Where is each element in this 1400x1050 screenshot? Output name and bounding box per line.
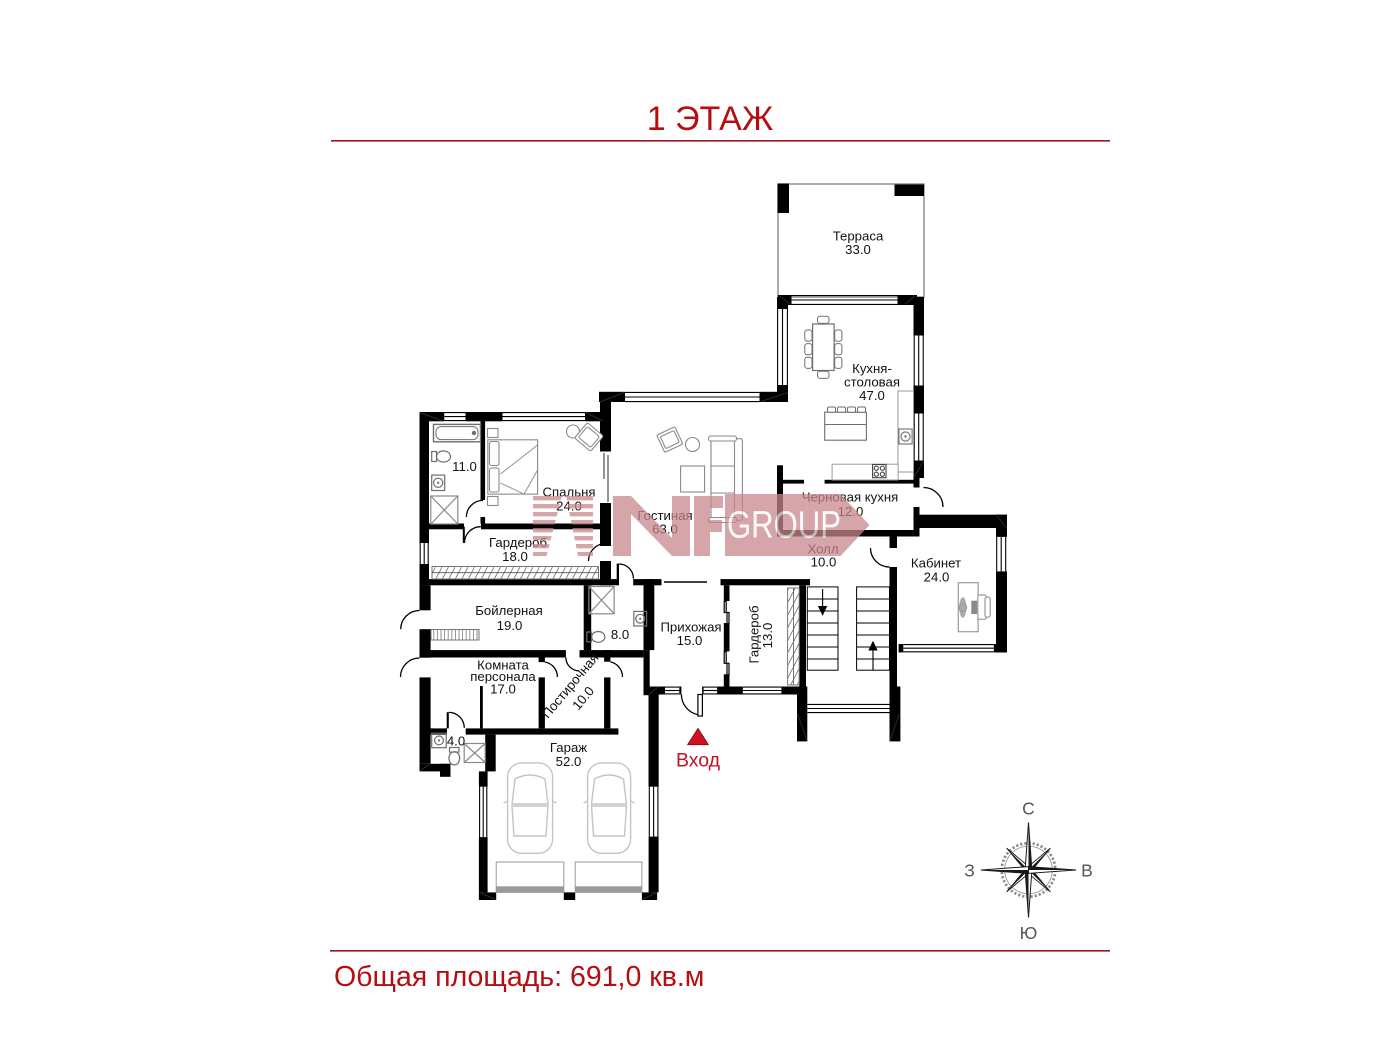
- svg-text:11.0: 11.0: [452, 459, 477, 474]
- svg-text:17.0: 17.0: [490, 682, 516, 697]
- svg-text:С: С: [1022, 799, 1035, 819]
- svg-text:Вход: Вход: [676, 750, 721, 772]
- svg-text:З: З: [964, 861, 975, 881]
- svg-text:47.0: 47.0: [859, 388, 885, 403]
- svg-text:19.0: 19.0: [497, 618, 523, 633]
- svg-text:52.0: 52.0: [556, 754, 582, 769]
- svg-text:4.0: 4.0: [447, 734, 465, 749]
- svg-text:Ю: Ю: [1020, 923, 1038, 943]
- svg-text:18.0: 18.0: [502, 549, 528, 564]
- svg-text:Бойлерная: Бойлерная: [475, 603, 542, 618]
- svg-text:15.0: 15.0: [677, 633, 703, 648]
- svg-text:Гараж: Гараж: [550, 740, 587, 755]
- svg-text:GROUP: GROUP: [727, 505, 841, 547]
- svg-text:Общая площадь: 691,0 кв.м: Общая площадь: 691,0 кв.м: [334, 961, 704, 993]
- svg-text:В: В: [1081, 861, 1093, 881]
- svg-text:1 ЭТАЖ: 1 ЭТАЖ: [647, 100, 774, 138]
- svg-text:8.0: 8.0: [611, 627, 629, 642]
- svg-text:24.0: 24.0: [924, 570, 950, 585]
- svg-text:33.0: 33.0: [845, 242, 871, 257]
- svg-text:13.0: 13.0: [760, 623, 775, 649]
- svg-text:Кабинет: Кабинет: [911, 556, 961, 571]
- svg-text:10.0: 10.0: [811, 555, 837, 570]
